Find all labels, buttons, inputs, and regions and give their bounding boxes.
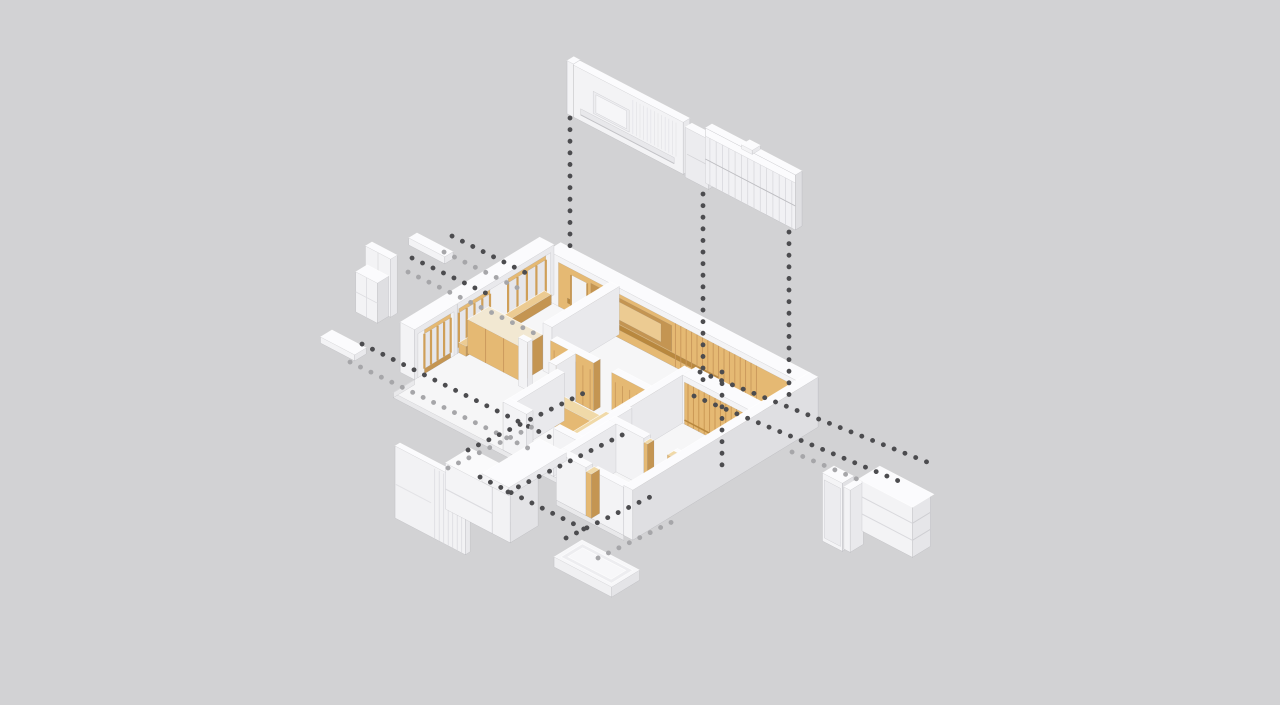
scene-canvas [0, 0, 1280, 712]
exploded-axonometric-diagram [0, 0, 1280, 712]
